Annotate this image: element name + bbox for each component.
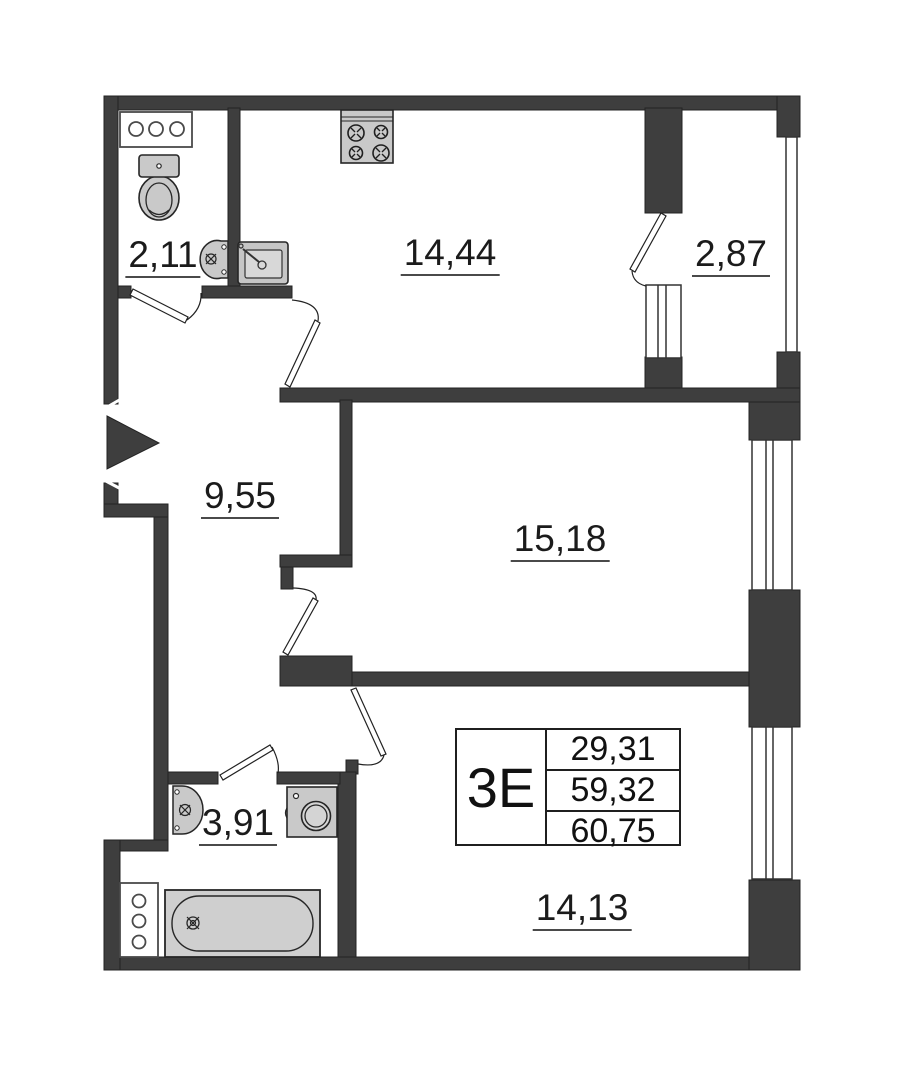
unit-area-total: 60,75: [547, 812, 679, 851]
room-label-bathroom: 3,91: [199, 804, 277, 846]
door-living-room-2: [351, 688, 386, 765]
washing-machine-icon: [286, 787, 338, 837]
window-living-room-2: [752, 727, 792, 879]
entrance-arrow-icon: [107, 416, 159, 469]
room-label-kitchen: 14,44: [401, 234, 500, 276]
door-bathroom: [220, 745, 278, 780]
room-label-living-room-1: 15,18: [511, 520, 610, 562]
door-living-room-1: [283, 588, 318, 655]
stove-icon: [341, 110, 393, 163]
room-label-balcony: 2,87: [692, 235, 770, 277]
unit-info-table: 3Е 29,31 59,32 60,75: [455, 728, 681, 846]
kitchen-sink-icon: [238, 242, 288, 284]
room-label-hallway: 9,55: [201, 477, 279, 519]
unit-area-living: 29,31: [547, 730, 679, 771]
vent-shaft-wc-icon: [120, 112, 192, 147]
door-kitchen: [285, 300, 320, 387]
balcony-glazing: [786, 137, 797, 352]
unit-area-apartment: 59,32: [547, 771, 679, 812]
window-living-room-1: [752, 440, 792, 590]
floor-plan: 2,11 14,44 2,87 9,55 15,18 3,91 14,13 3Е…: [0, 0, 900, 1080]
wc-sink-icon: [200, 241, 228, 279]
toilet-icon: [139, 155, 179, 220]
bathtub-icon: [165, 890, 320, 957]
window-kitchen-balcony: [646, 285, 681, 358]
floor-plan-drawing: [0, 0, 900, 1080]
unit-areas: 29,31 59,32 60,75: [547, 730, 679, 844]
unit-type-label: 3Е: [457, 730, 547, 844]
door-balcony: [630, 213, 666, 286]
room-label-living-room-2: 14,13: [533, 889, 632, 931]
vent-shaft-bath-icon: [120, 883, 158, 957]
room-label-wc: 2,11: [125, 236, 200, 278]
door-wc: [130, 289, 201, 323]
